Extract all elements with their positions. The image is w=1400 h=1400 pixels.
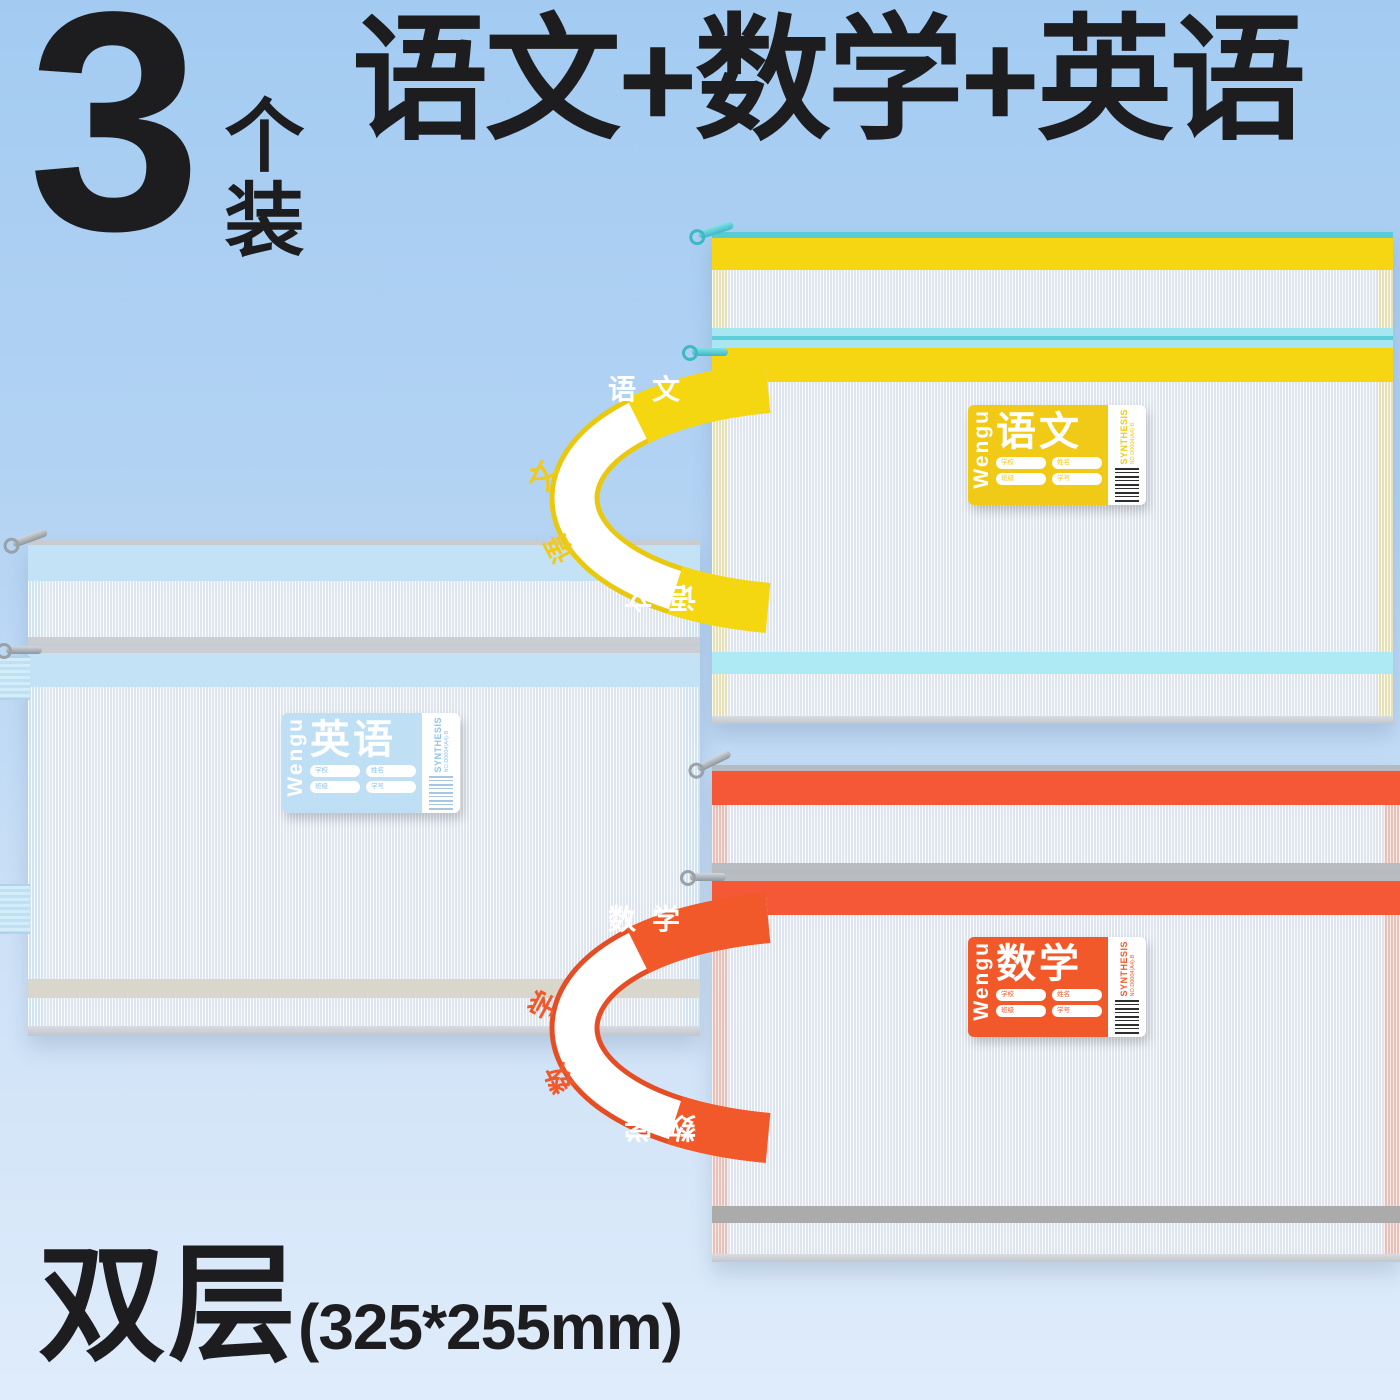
- bag-handle-math: 数学 学 数 数学: [500, 882, 770, 1174]
- bag-accent-band: [712, 652, 1393, 674]
- label-field: 学号: [1052, 473, 1102, 485]
- subject-label-math: Wengu 数学 学校 姓名 班级 学号 SYNTHESIS NO.D0004(…: [968, 937, 1146, 1037]
- bag-handle-chinese: 语文 文 语 语文: [500, 352, 770, 644]
- label-code-text: NO.D0004(A4)-B: [1130, 941, 1136, 997]
- dimensions-label: (325*255mm): [298, 1290, 682, 1364]
- mesh-panel: [712, 805, 1400, 863]
- pack-badge: 3 个装: [28, 0, 316, 278]
- label-field: 班级: [996, 473, 1046, 485]
- bag-trim-band: [712, 348, 1393, 382]
- mesh-panel: Wengu 数学 学校 姓名 班级 学号 SYNTHESIS NO.D0004(…: [712, 915, 1400, 1206]
- bag-bottom-edge: [712, 716, 1393, 724]
- brand-logo: Wengu: [970, 409, 994, 489]
- bag-trim-band: [712, 881, 1400, 915]
- barcode: [429, 776, 453, 810]
- page-title: 语文+数学+英语: [352, 0, 1303, 167]
- barcode: [1115, 468, 1139, 502]
- label-field: 学校: [996, 989, 1046, 1001]
- barcode: [1115, 1000, 1139, 1034]
- label-field: 班级: [310, 781, 360, 793]
- label-series-text: SYNTHESIS: [1119, 409, 1129, 465]
- bag-trim-band: [712, 238, 1393, 270]
- label-field: 姓名: [1052, 989, 1102, 1001]
- label-field: 学校: [310, 765, 360, 777]
- subject-name: 数学: [996, 943, 1108, 985]
- label-field: 姓名: [366, 765, 416, 777]
- size-note: 双层 (325*255mm): [38, 1201, 682, 1386]
- label-field: 姓名: [1052, 457, 1102, 469]
- handle-subject-text: 语文: [608, 582, 696, 614]
- handle-subject-text: 语文: [608, 373, 696, 405]
- label-field: 学号: [1052, 1005, 1102, 1017]
- mesh-panel: Wengu 语文 学校 姓名 班级 学号 SYNTHESIS NO.D0004(…: [712, 382, 1393, 652]
- zipper-pull-icon: [6, 646, 42, 654]
- bag-accent-band: [712, 1206, 1400, 1223]
- brand-logo: Wengu: [284, 717, 308, 797]
- pack-count: 3: [28, 0, 194, 278]
- zipper-pull-icon: [690, 873, 726, 881]
- label-series-text: SYNTHESIS: [433, 717, 443, 773]
- product-poster: 3 个装 语文+数学+英语 Wengu 英语 学校 姓名: [0, 0, 1400, 1400]
- handle-strap: [0, 884, 30, 934]
- layer-label: 双层: [38, 1201, 298, 1386]
- label-field: 学校: [996, 457, 1046, 469]
- bag-chinese: Wengu 语文 学校 姓名 班级 学号 SYNTHESIS NO.D0004(…: [712, 232, 1393, 724]
- subject-label-chinese: Wengu 语文 学校 姓名 班级 学号 SYNTHESIS NO.D0004(…: [968, 405, 1146, 505]
- bag-trim-band: [712, 771, 1400, 805]
- subject-name: 英语: [310, 719, 422, 761]
- mesh-panel: [712, 674, 1393, 716]
- mesh-panel: [712, 1223, 1400, 1254]
- handle-subject-text: 数学: [608, 1112, 696, 1144]
- handle-strap: [0, 656, 30, 700]
- handle-subject-text: 数学: [608, 903, 696, 935]
- mesh-panel: [712, 270, 1393, 328]
- label-code-text: NO.D0004(A4)-B: [1130, 409, 1136, 465]
- label-field: 学号: [366, 781, 416, 793]
- pack-unit: 个装: [200, 94, 316, 278]
- zipper: [712, 863, 1400, 881]
- label-code-text: NO.D0004(A4)-B: [444, 717, 450, 773]
- subject-name: 语文: [996, 411, 1108, 453]
- bag-math: Wengu 数学 学校 姓名 班级 学号 SYNTHESIS NO.D0004(…: [712, 765, 1400, 1262]
- bag-trim-band: [28, 653, 700, 687]
- bag-bottom-edge: [712, 1254, 1400, 1262]
- label-series-text: SYNTHESIS: [1119, 941, 1129, 997]
- zipper: [712, 328, 1393, 348]
- subject-label-english: Wengu 英语 学校 姓名 班级 学号 SYNTHESIS NO.D0004(…: [282, 713, 460, 813]
- brand-logo: Wengu: [970, 941, 994, 1021]
- label-field: 班级: [996, 1005, 1046, 1017]
